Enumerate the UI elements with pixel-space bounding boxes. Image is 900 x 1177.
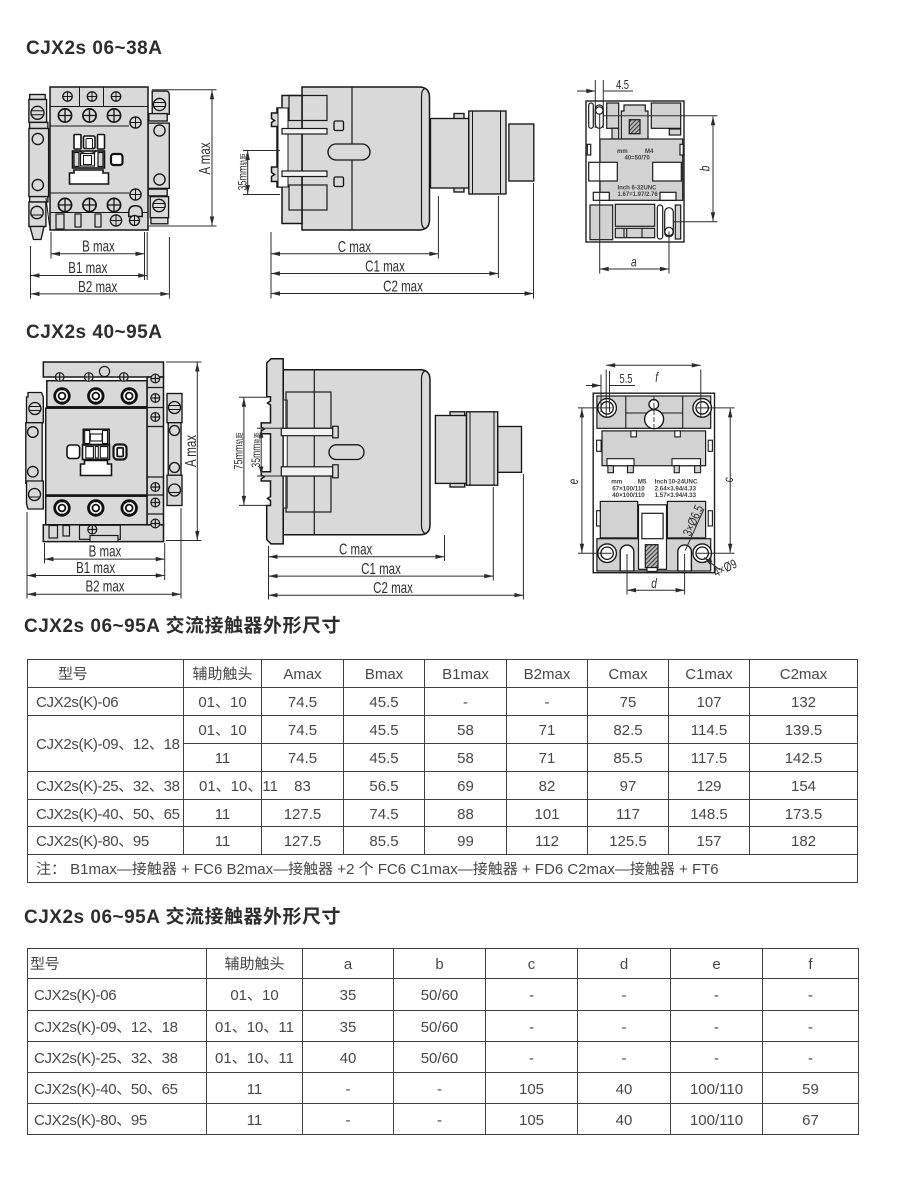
svg-text:35mm轨距: 35mm轨距 <box>251 432 263 467</box>
svg-text:C max: C max <box>339 539 372 557</box>
svg-text:4.5: 4.5 <box>616 79 629 93</box>
svg-text:e: e <box>565 479 581 485</box>
svg-text:35mm轨距: 35mm轨距 <box>236 154 250 191</box>
svg-text:1.57×3.94/4.33: 1.57×3.94/4.33 <box>655 492 697 499</box>
svg-text:B max: B max <box>82 237 115 255</box>
svg-text:C max: C max <box>338 237 371 255</box>
svg-text:40=50/70: 40=50/70 <box>625 156 651 162</box>
svg-text:A max: A max <box>181 435 199 467</box>
svg-text:b: b <box>697 166 713 172</box>
svg-text:B2 max: B2 max <box>78 277 117 295</box>
svg-text:A max: A max <box>195 142 213 174</box>
svg-text:1.67=1.97/2.76: 1.67=1.97/2.76 <box>618 192 659 198</box>
svg-text:C1 max: C1 max <box>365 257 405 275</box>
svg-text:C2 max: C2 max <box>383 277 423 295</box>
svg-text:C1 max: C1 max <box>361 559 401 577</box>
svg-text:75mm轨距: 75mm轨距 <box>232 433 246 470</box>
svg-text:M4: M4 <box>645 149 654 155</box>
svg-text:C2 max: C2 max <box>373 578 413 596</box>
svg-text:f: f <box>655 369 659 385</box>
svg-text:mm: mm <box>617 149 628 155</box>
svg-text:5.5: 5.5 <box>619 373 632 387</box>
svg-text:4×Ø9: 4×Ø9 <box>712 558 740 580</box>
svg-text:a: a <box>631 254 637 270</box>
svg-text:c: c <box>720 477 736 482</box>
svg-text:40×100/110: 40×100/110 <box>612 492 645 499</box>
svg-text:B1 max: B1 max <box>76 558 115 576</box>
svg-text:Inch 6-32UNC: Inch 6-32UNC <box>618 186 658 192</box>
svg-text:B2 max: B2 max <box>85 577 124 595</box>
svg-text:B1 max: B1 max <box>68 258 107 276</box>
svg-text:d: d <box>651 575 658 591</box>
